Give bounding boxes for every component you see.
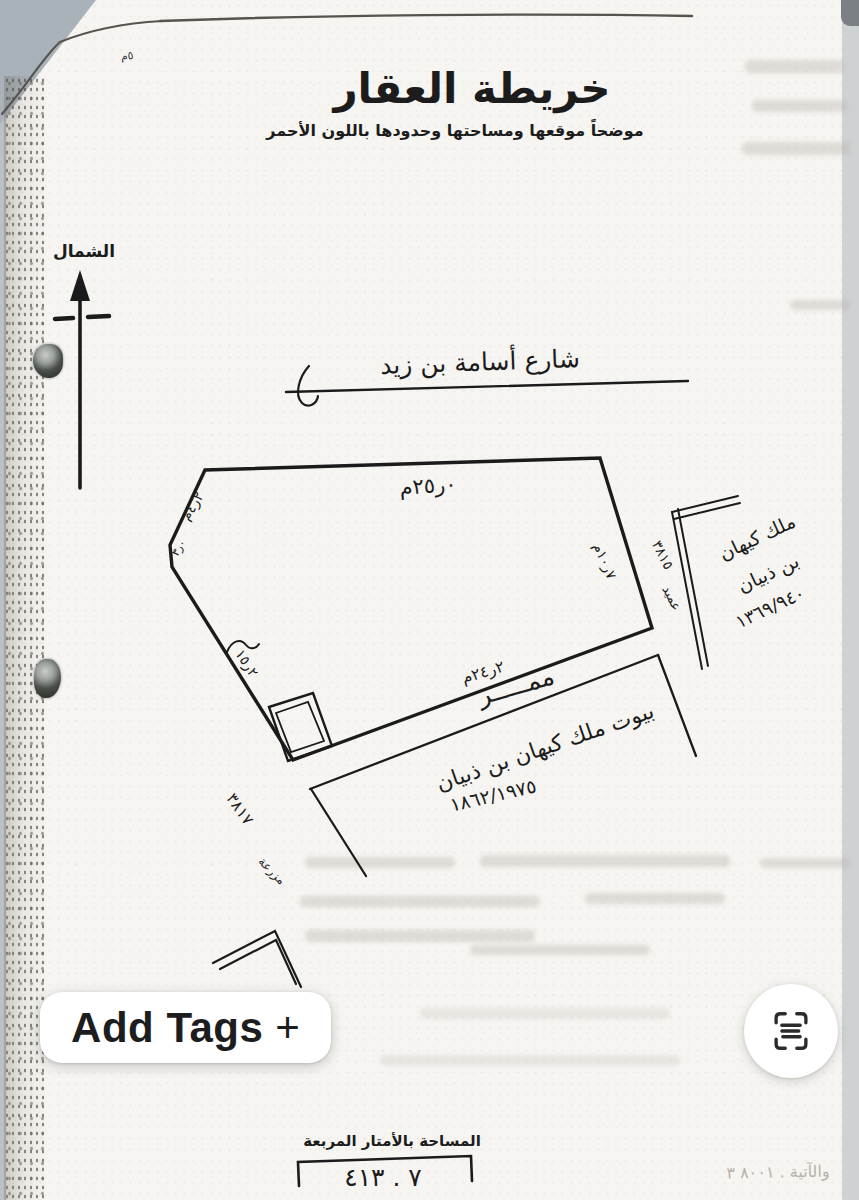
- area-value: ٤١٣ . ٧: [344, 1163, 422, 1192]
- paper-corner-edge: [2, 21, 162, 114]
- north-arrow-dashes: [55, 316, 109, 319]
- chevron-wall-inner: [220, 940, 296, 984]
- street-line-hook: [298, 366, 318, 406]
- page-subtitle: موضحاً موقعها ومساحتها وحدودها باللون ال…: [266, 121, 643, 140]
- stray-corner-mark: ٥م: [120, 49, 134, 64]
- add-tags-label: Add Tags: [71, 1004, 263, 1052]
- page-title: خريطة العقار: [333, 64, 610, 113]
- scan-text-icon: [767, 1007, 815, 1055]
- north-label: الشمال: [53, 241, 115, 261]
- plus-icon: +: [275, 1004, 300, 1052]
- plot-outline: [170, 458, 652, 760]
- chevron-wall-outer: [213, 931, 301, 987]
- area-label: المساحة بالأمتار المربعة: [303, 1132, 481, 1150]
- measurement-top-edge: م٢٥ر٠: [399, 472, 458, 500]
- north-arrow-head: [70, 270, 90, 301]
- right-wall-double-line: [672, 509, 708, 669]
- add-tags-button[interactable]: Add Tags +: [40, 992, 331, 1063]
- faint-stamp-number: والآتية . ٨٠٠١ ٣: [726, 1162, 829, 1183]
- photo-viewer-canvas: ٥م خريطة العقار موضحاً موقعها ومساحتها و…: [0, 0, 859, 1200]
- paper-top-edge: [160, 15, 692, 21]
- street-line: [286, 381, 688, 392]
- block-left-edge: [311, 789, 366, 876]
- right-wall-top-double-line: [672, 496, 740, 519]
- scan-text-button[interactable]: [744, 984, 838, 1078]
- block-right-edge: [658, 655, 696, 756]
